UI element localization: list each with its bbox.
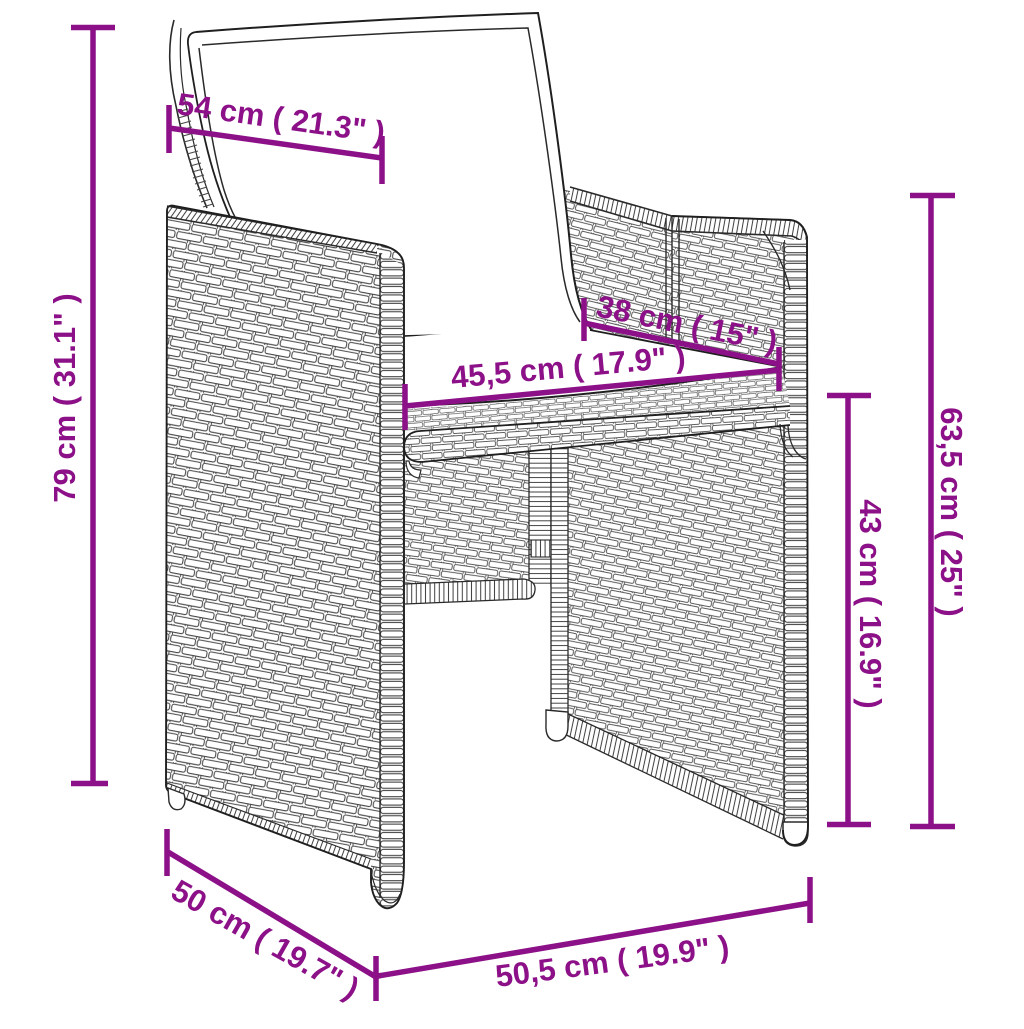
svg-text:43 cm ( 16.9" ): 43 cm ( 16.9" ) bbox=[853, 499, 888, 708]
svg-text:63,5 cm ( 25" ): 63,5 cm ( 25" ) bbox=[934, 407, 969, 616]
svg-text:79 cm ( 31.1" ): 79 cm ( 31.1" ) bbox=[47, 293, 82, 502]
